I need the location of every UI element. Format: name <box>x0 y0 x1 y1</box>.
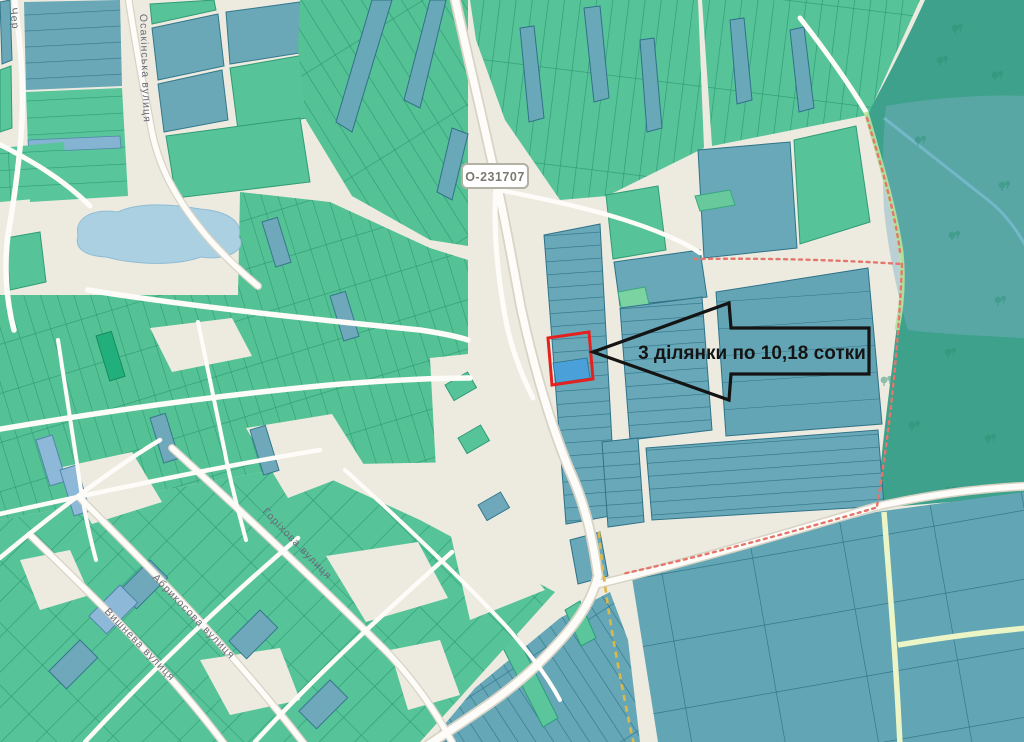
pond <box>77 205 241 264</box>
map-viewport[interactable]: Чер Осакінська вулиця Горіхова вулиця Аб… <box>0 0 1024 742</box>
map-canvas[interactable]: Чер Осакінська вулиця Горіхова вулиця Аб… <box>0 0 1024 742</box>
annotation-text: 3 ділянки по 10,18 сотки <box>638 343 866 364</box>
forest-water-overlay <box>883 95 1024 338</box>
road-label-badge: О-231707 <box>462 164 528 188</box>
street-label-cut: Чер <box>7 7 21 30</box>
road-label-text: О-231707 <box>465 170 525 184</box>
